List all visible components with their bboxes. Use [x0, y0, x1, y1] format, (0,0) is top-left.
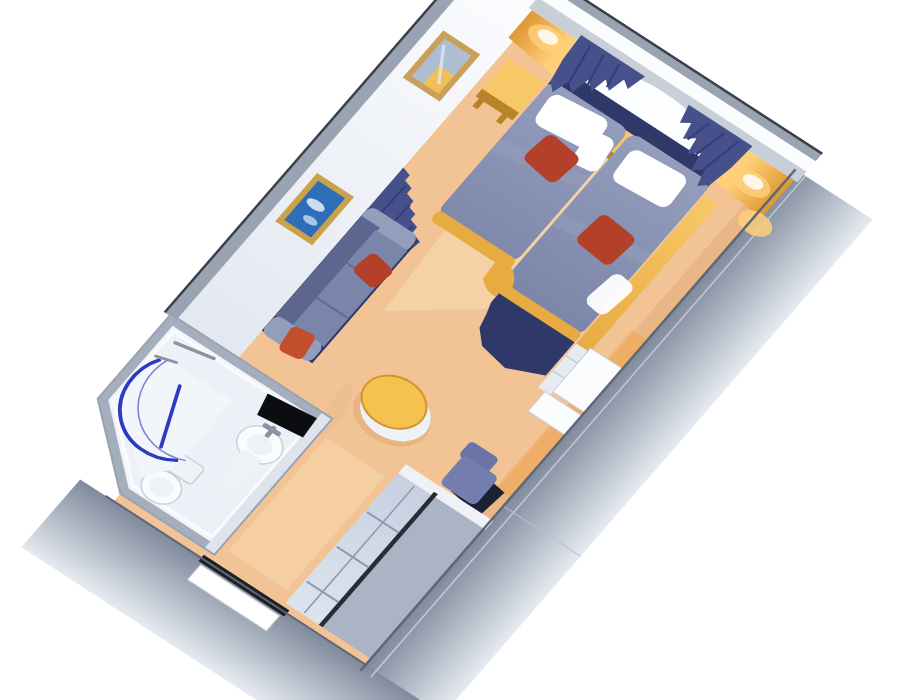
stateroom-floorplan-render	[0, 0, 900, 700]
floorplan-svg	[0, 0, 900, 700]
